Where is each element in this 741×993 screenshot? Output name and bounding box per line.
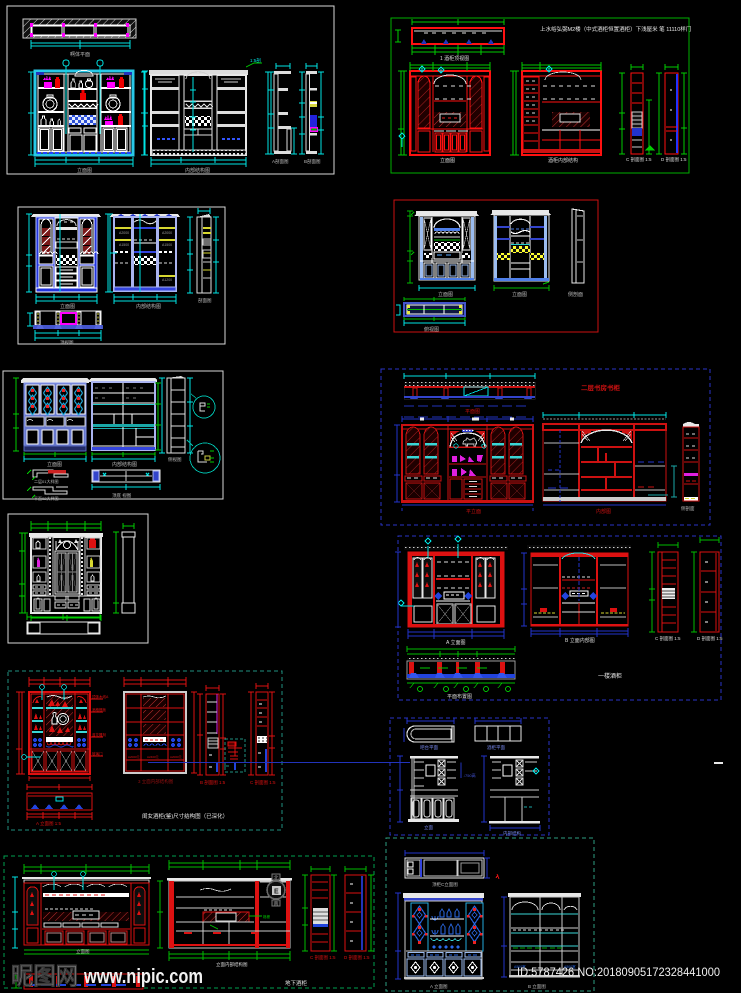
svg-text:顶底 视图: 顶底 视图 [112,492,132,499]
svg-text:一楼酒柜: 一楼酒柜 [598,672,622,680]
svg-text:剖面图: 剖面图 [198,297,212,304]
svg-text:↓750高: ↓750高 [463,772,476,778]
svg-text:内部结构: 内部结构 [503,830,521,837]
svg-text:A2000: A2000 [162,231,172,235]
svg-text:A 立面图: A 立面图 [446,639,465,646]
svg-text:南: 南 [274,901,279,908]
svg-text:内部结构图: 内部结构图 [185,167,210,174]
svg-text:上水峪弘弼M2楼（中式酒柜恒置酒柜）下浅屋米 笔 1111: 上水峪弘弼M2楼（中式酒柜恒置酒柜）下浅屋米 笔 11110样门 [540,25,691,33]
svg-text:酒格栅板: 酒格栅板 [92,707,106,712]
svg-text:ID:5787426 NO:2018090517232844: ID:5787426 NO:20180905172328441000 [517,965,720,979]
svg-text:侧剖面: 侧剖面 [681,505,695,512]
svg-text:侧视图: 侧视图 [168,456,182,463]
svg-text:A1200: A1200 [162,278,172,282]
svg-text:二层01大样图: 二层01大样图 [34,478,58,484]
svg-text:1:5剖: 1:5剖 [250,57,261,64]
svg-text:昵图网: 昵图网 [11,963,78,990]
svg-text:闺女酒柜(鉴)尺寸结构图（已深化）: 闺女酒柜(鉴)尺寸结构图（已深化） [142,812,228,820]
svg-text:顶饰木线A: 顶饰木线A [92,694,109,699]
svg-text:A 立面图: A 立面图 [430,983,448,990]
svg-text:俯视图: 俯视图 [424,326,439,333]
svg-text:立面图: 立面图 [76,948,90,955]
svg-text:吧台平面: 吧台平面 [420,744,438,751]
svg-text:D 剖面图 1:5: D 剖面图 1:5 [344,954,370,961]
svg-text:格栅: 格栅 [263,914,271,919]
svg-text:立面图: 立面图 [512,291,527,298]
svg-text:B 剖面图 1:5: B 剖面图 1:5 [200,779,226,786]
svg-text:1 酒柜顶视图: 1 酒柜顶视图 [440,55,469,62]
svg-text:A2000元: A2000元 [170,755,182,759]
svg-text:E: E [274,889,279,896]
svg-text:平立面: 平立面 [466,508,481,515]
svg-text:C 剖面图 1:5: C 剖面图 1:5 [655,635,681,642]
svg-text:内部结构图: 内部结构图 [136,303,161,310]
svg-text:3 立面内部结构图: 3 立面内部结构图 [138,778,174,785]
svg-text:A2400元: A2400元 [147,755,159,759]
svg-text:C 剖面图 1:5: C 剖面图 1:5 [250,779,276,786]
svg-text:啊体平面: 啊体平面 [70,51,90,58]
svg-text:立面图: 立面图 [440,157,455,164]
svg-text:立面图: 立面图 [47,461,62,468]
svg-text:平面布置图: 平面布置图 [447,693,472,700]
svg-text:立面: 立面 [424,824,433,831]
svg-text:立面图: 立面图 [60,303,75,310]
svg-text:A1500: A1500 [162,243,172,247]
svg-text:顶视图: 顶视图 [60,339,74,346]
svg-text:B剖面图: B剖面图 [304,158,321,165]
svg-text:C 剖面图 1:5: C 剖面图 1:5 [626,156,652,163]
svg-text:酒柜平面: 酒柜平面 [487,744,505,751]
svg-text:C 剖面图 1:5: C 剖面图 1:5 [310,954,336,961]
svg-text:B 立面图: B 立面图 [528,983,546,990]
svg-text:地下酒柜: 地下酒柜 [285,979,308,987]
svg-text:www.nipic.com: www.nipic.com [83,966,203,988]
svg-text:顶柜C立面图: 顶柜C立面图 [432,881,458,888]
svg-text:A2000元: A2000元 [128,755,140,759]
svg-text:蓝花雕刻: 蓝花雕刻 [92,732,106,737]
svg-text:A1500: A1500 [119,243,129,247]
svg-text:立面图: 立面图 [77,167,92,174]
svg-text:立面图: 立面图 [438,291,453,298]
svg-text:酒柜内部结构: 酒柜内部结构 [548,157,578,164]
svg-text:A剖面图: A剖面图 [272,158,289,165]
svg-text:北: 北 [274,875,279,882]
svg-text:平面02大样图: 平面02大样图 [34,495,58,501]
svg-text:内部图: 内部图 [596,508,611,515]
svg-text:平面图: 平面图 [465,409,480,415]
svg-text:D 剖面图 1:5: D 剖面图 1:5 [697,635,723,642]
svg-text:A2000: A2000 [119,231,129,235]
svg-text:A 立面图 1:5: A 立面图 1:5 [36,820,62,827]
svg-text:内部结构图: 内部结构图 [112,461,137,468]
svg-text:侧剖面: 侧剖面 [568,291,583,298]
svg-text:B 立面内部图: B 立面内部图 [565,637,595,644]
svg-text:玻璃门: 玻璃门 [92,751,103,756]
svg-text:二层书房书柜: 二层书房书柜 [581,383,621,392]
svg-text:立面内部结构图: 立面内部结构图 [216,961,248,968]
svg-text:D 剖面图 1:5: D 剖面图 1:5 [661,156,687,163]
